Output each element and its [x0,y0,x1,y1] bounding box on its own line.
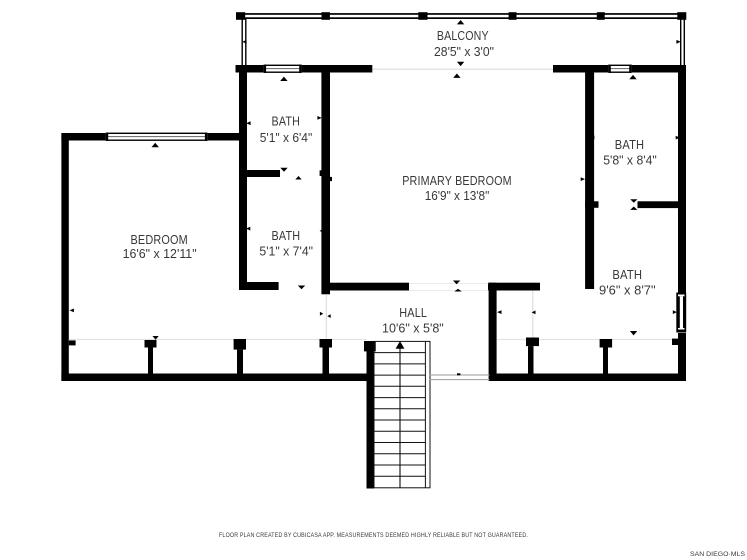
svg-text:BALCONY: BALCONY [437,28,489,43]
svg-text:16'9" x 13'8": 16'9" x 13'8" [425,188,490,203]
svg-text:16'6" x 12'11": 16'6" x 12'11" [123,246,197,261]
svg-text:28'5" x 3'0": 28'5" x 3'0" [434,44,494,59]
svg-text:5'1" x 6'4": 5'1" x 6'4" [260,130,313,145]
svg-text:FLOOR PLAN CREATED BY CUBICASA: FLOOR PLAN CREATED BY CUBICASA APP. MEAS… [219,532,528,539]
svg-text:PRIMARY BEDROOM: PRIMARY BEDROOM [402,173,512,188]
svg-text:SAN DIEGO·MLS: SAN DIEGO·MLS [690,551,746,558]
svg-text:BATH: BATH [612,267,642,282]
svg-text:BATH: BATH [615,137,645,152]
svg-text:9'6" x 8'7": 9'6" x 8'7" [599,282,656,297]
svg-text:BEDROOM: BEDROOM [131,232,188,247]
svg-text:5'8" x 8'4": 5'8" x 8'4" [603,153,657,168]
svg-text:BATH: BATH [272,228,301,243]
svg-text:10'6" x 5'8": 10'6" x 5'8" [382,320,444,335]
svg-text:HALL: HALL [399,305,427,320]
svg-text:BATH: BATH [272,114,301,129]
svg-text:5'1" x 7'4": 5'1" x 7'4" [259,244,313,259]
